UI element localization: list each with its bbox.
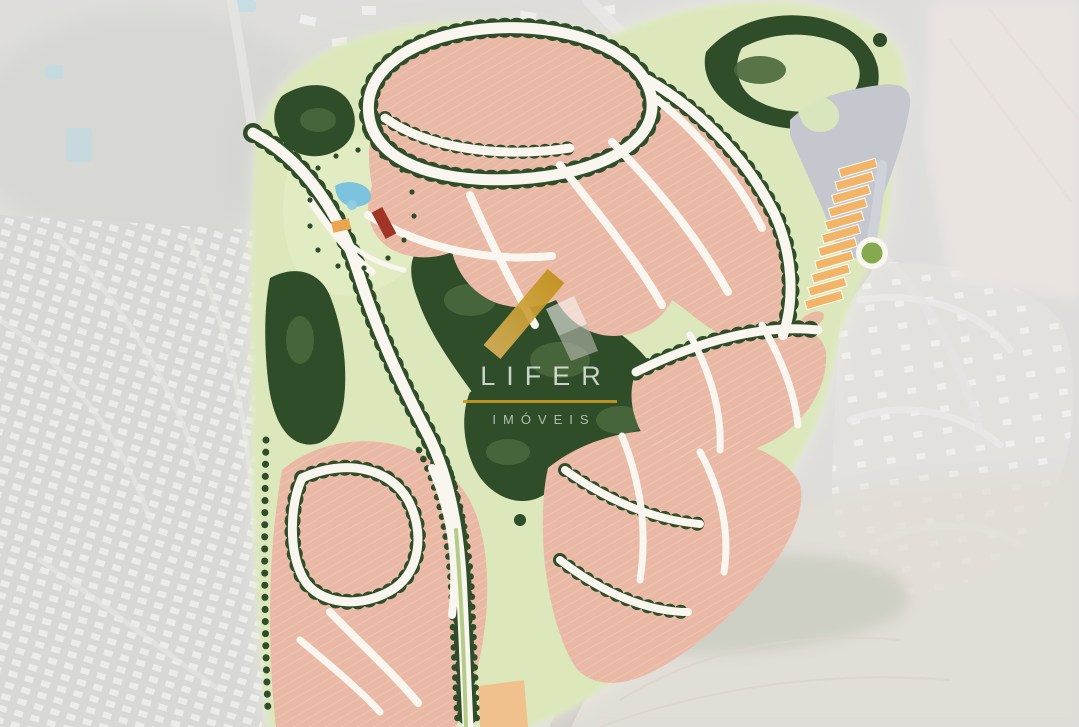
clubhouse-pool-small [347, 200, 357, 210]
masterplan-aerial-image: LIFER IMÓVEIS [0, 0, 1079, 727]
tan-block-south [478, 680, 528, 727]
site-plan-canvas [0, 0, 1079, 727]
roundabout [862, 243, 883, 264]
